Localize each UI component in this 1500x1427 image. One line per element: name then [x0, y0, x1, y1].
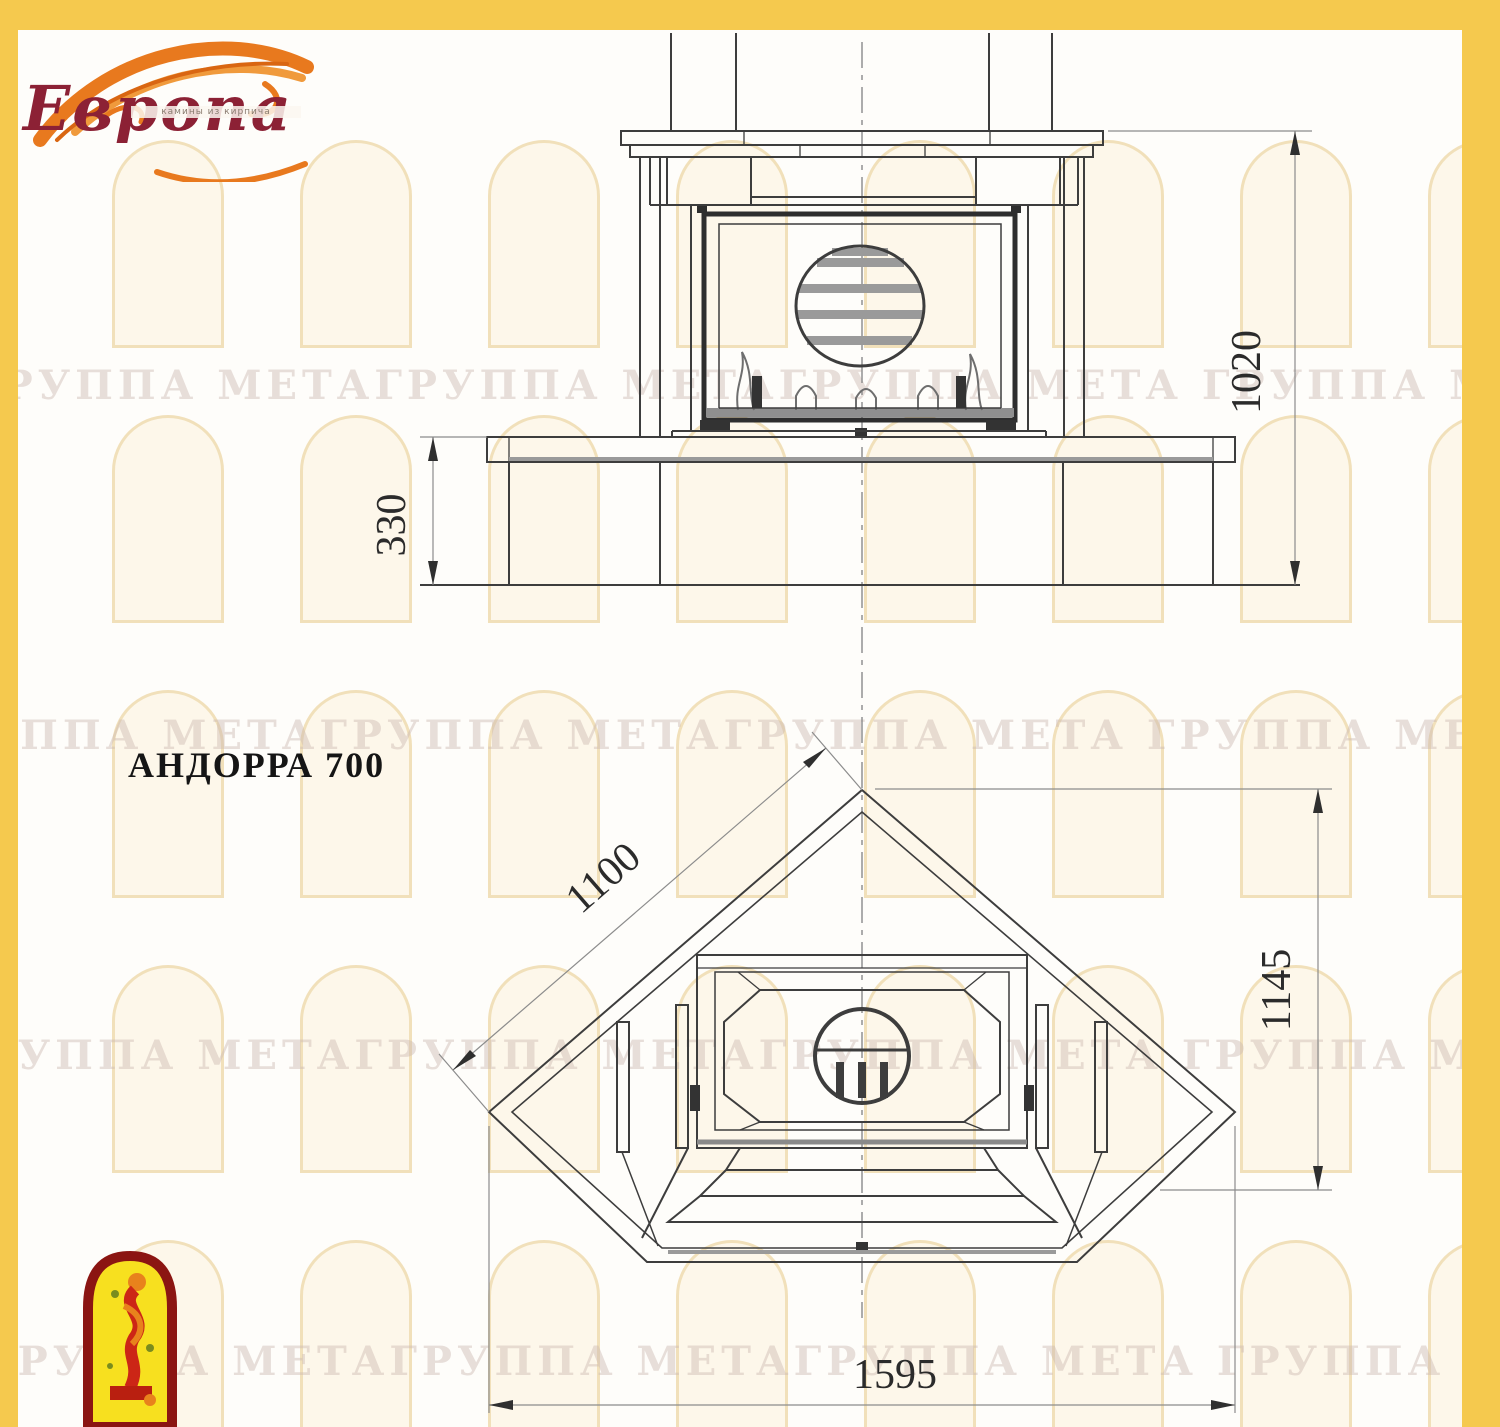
- wall-left-inner: [676, 1005, 688, 1148]
- dim-1100-line: [453, 748, 826, 1070]
- dim-label-330: 330: [369, 494, 415, 557]
- brand-logo: Европа камины из кирпича: [15, 22, 325, 182]
- brand-tagline: камины из кирпича: [131, 106, 301, 118]
- drawing-sheet: ГРУППА МЕТАГРУППА МЕТАГРУППА МЕТА ГРУППА…: [0, 0, 1500, 1427]
- front-dimensions: [420, 131, 1312, 585]
- handle-left: [690, 1085, 700, 1111]
- bench-base: [509, 462, 1213, 585]
- arch-figure-badge-icon: [80, 1248, 180, 1427]
- door-foot-right: [986, 420, 1016, 431]
- flue-bar-3: [880, 1062, 888, 1098]
- wall-right-inner: [1036, 1005, 1048, 1148]
- front-dim-arrows: [428, 131, 1300, 585]
- andiron-right: [956, 376, 966, 408]
- model-title: АНДОРРА 700: [128, 744, 385, 786]
- hinge-right: [1011, 206, 1021, 213]
- wall-left-outer: [617, 1022, 629, 1152]
- corbel-right: [976, 157, 1060, 205]
- andiron-left: [752, 376, 762, 408]
- frame-right-band: [1462, 0, 1500, 1427]
- door-foot-left: [700, 420, 730, 431]
- grate-band: [706, 408, 1014, 417]
- dim-label-1100: 1100: [557, 834, 649, 923]
- wall-right-outer: [1095, 1022, 1107, 1152]
- dim-label-1595: 1595: [853, 1352, 937, 1398]
- hinge-left: [697, 206, 707, 213]
- flue-bar-2: [858, 1062, 866, 1098]
- rosette: [796, 246, 924, 366]
- frame-left-band: [0, 0, 18, 1427]
- handle-right: [1024, 1085, 1034, 1111]
- drawing-canvas: 330 1020: [0, 0, 1500, 1427]
- frieze-edges: [650, 157, 1078, 205]
- flue-bar-1: [836, 1062, 844, 1098]
- dim-label-1145: 1145: [1254, 949, 1300, 1031]
- corbel-left: [667, 157, 751, 205]
- dim-1100-extensions: [439, 732, 862, 1112]
- front-center-tick: [856, 1242, 868, 1250]
- dim-label-1020: 1020: [1224, 330, 1270, 414]
- flames: [737, 352, 982, 410]
- front-view: [420, 33, 1300, 585]
